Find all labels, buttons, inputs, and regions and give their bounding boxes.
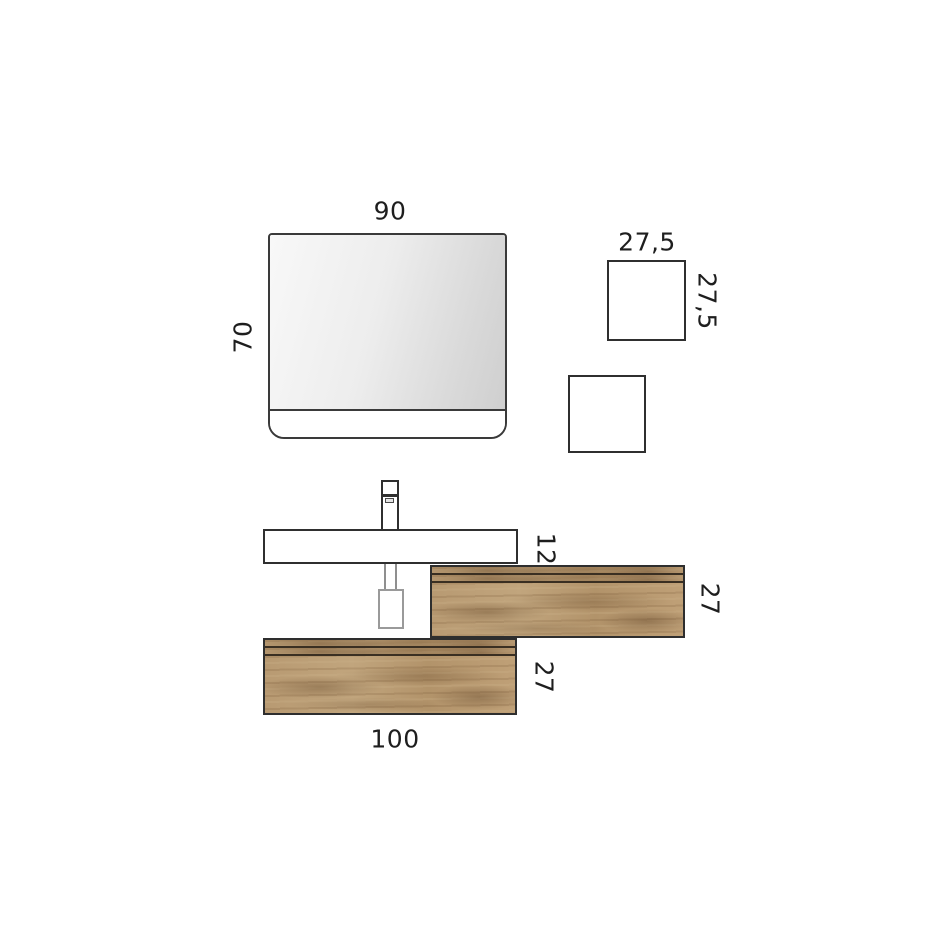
upper-cabinet-height-label: 27 bbox=[696, 583, 725, 616]
drain-pipe-left bbox=[384, 563, 386, 590]
mirror-width-label: 90 bbox=[374, 197, 407, 226]
mirror-height-label: 70 bbox=[229, 321, 258, 354]
wall-box-small bbox=[568, 375, 646, 453]
diagram-canvas: 90 70 27,5 27,5 12 27 27 100 bbox=[0, 0, 950, 950]
lower-cabinet-width-label: 100 bbox=[370, 725, 419, 754]
siphon bbox=[378, 589, 404, 629]
upper-cabinet-front bbox=[432, 583, 683, 636]
faucet-handle bbox=[383, 482, 397, 497]
upper-cabinet bbox=[430, 565, 685, 638]
lower-cabinet bbox=[263, 638, 517, 715]
faucet-spout bbox=[385, 498, 394, 503]
basin-thickness-label: 12 bbox=[532, 533, 561, 566]
wall-box-height-label: 27,5 bbox=[693, 272, 722, 330]
faucet bbox=[381, 480, 399, 529]
mirror-shelf bbox=[270, 411, 505, 437]
lower-cabinet-front bbox=[265, 656, 515, 713]
mirror-glass bbox=[270, 235, 505, 411]
washbasin-top bbox=[263, 529, 518, 564]
drain-pipe-right bbox=[395, 563, 397, 590]
wall-box-large bbox=[607, 260, 686, 341]
wall-box-width-label: 27,5 bbox=[618, 228, 676, 257]
lower-cabinet-height-label: 27 bbox=[530, 661, 559, 694]
mirror bbox=[268, 233, 507, 439]
